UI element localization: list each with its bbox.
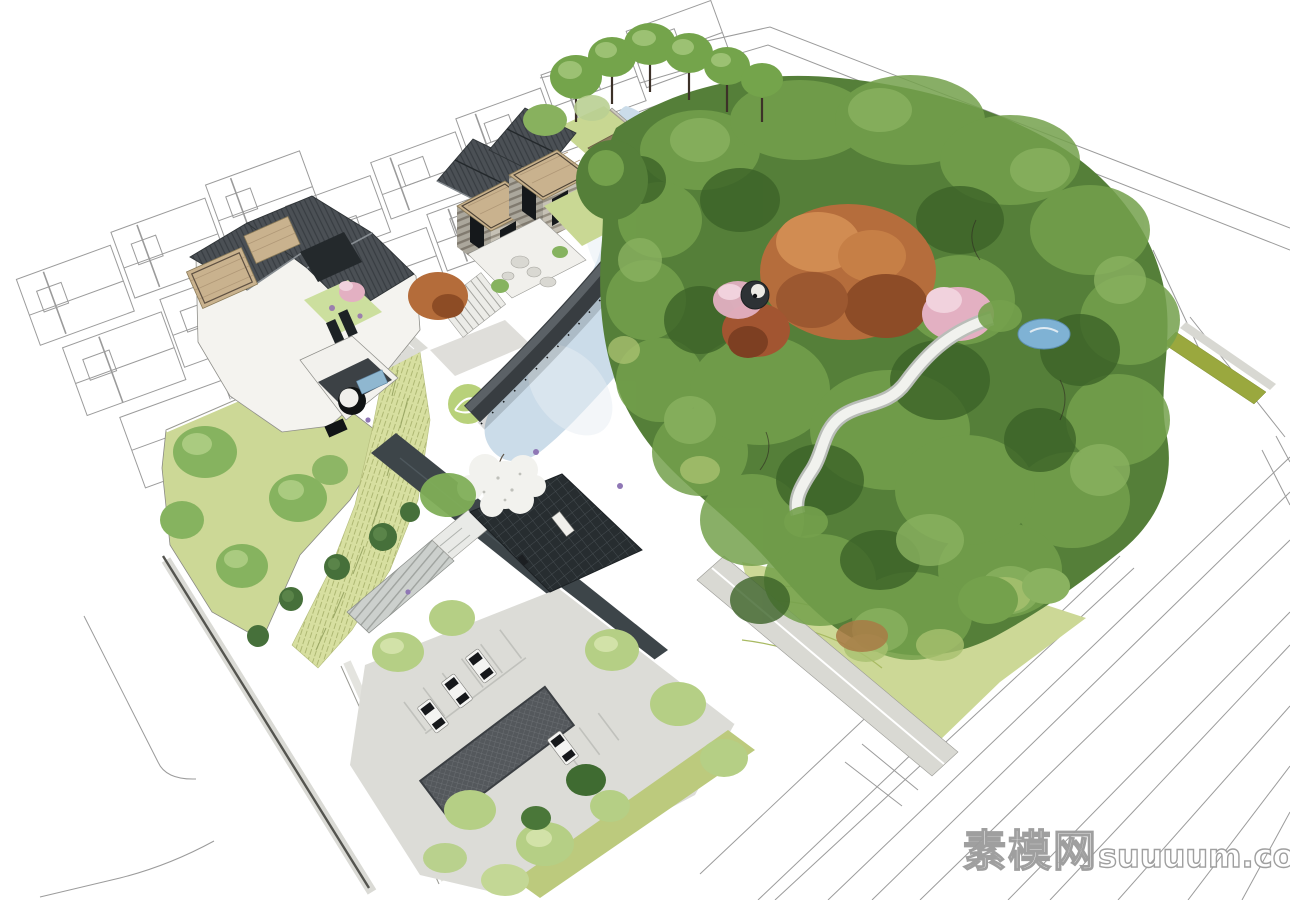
svg-text:素模网suuuum.com: 素模网suuuum.com (963, 827, 1290, 877)
round-pavilion (741, 281, 769, 309)
cad-lines-bottom-left (40, 616, 214, 897)
forest-canopy (600, 75, 1180, 662)
watermark-latin: suuuum.com (1098, 837, 1290, 875)
watermark: 素模网suuuum.com (963, 827, 1290, 877)
roadside-olive-strip (1164, 322, 1276, 404)
rendering-canvas: 素模网suuuum.com (0, 0, 1290, 900)
watermark-cn: 素模网 (963, 827, 1098, 877)
small-pool (1018, 319, 1070, 349)
landscape-rendering: 素模网suuuum.com (0, 0, 1290, 900)
